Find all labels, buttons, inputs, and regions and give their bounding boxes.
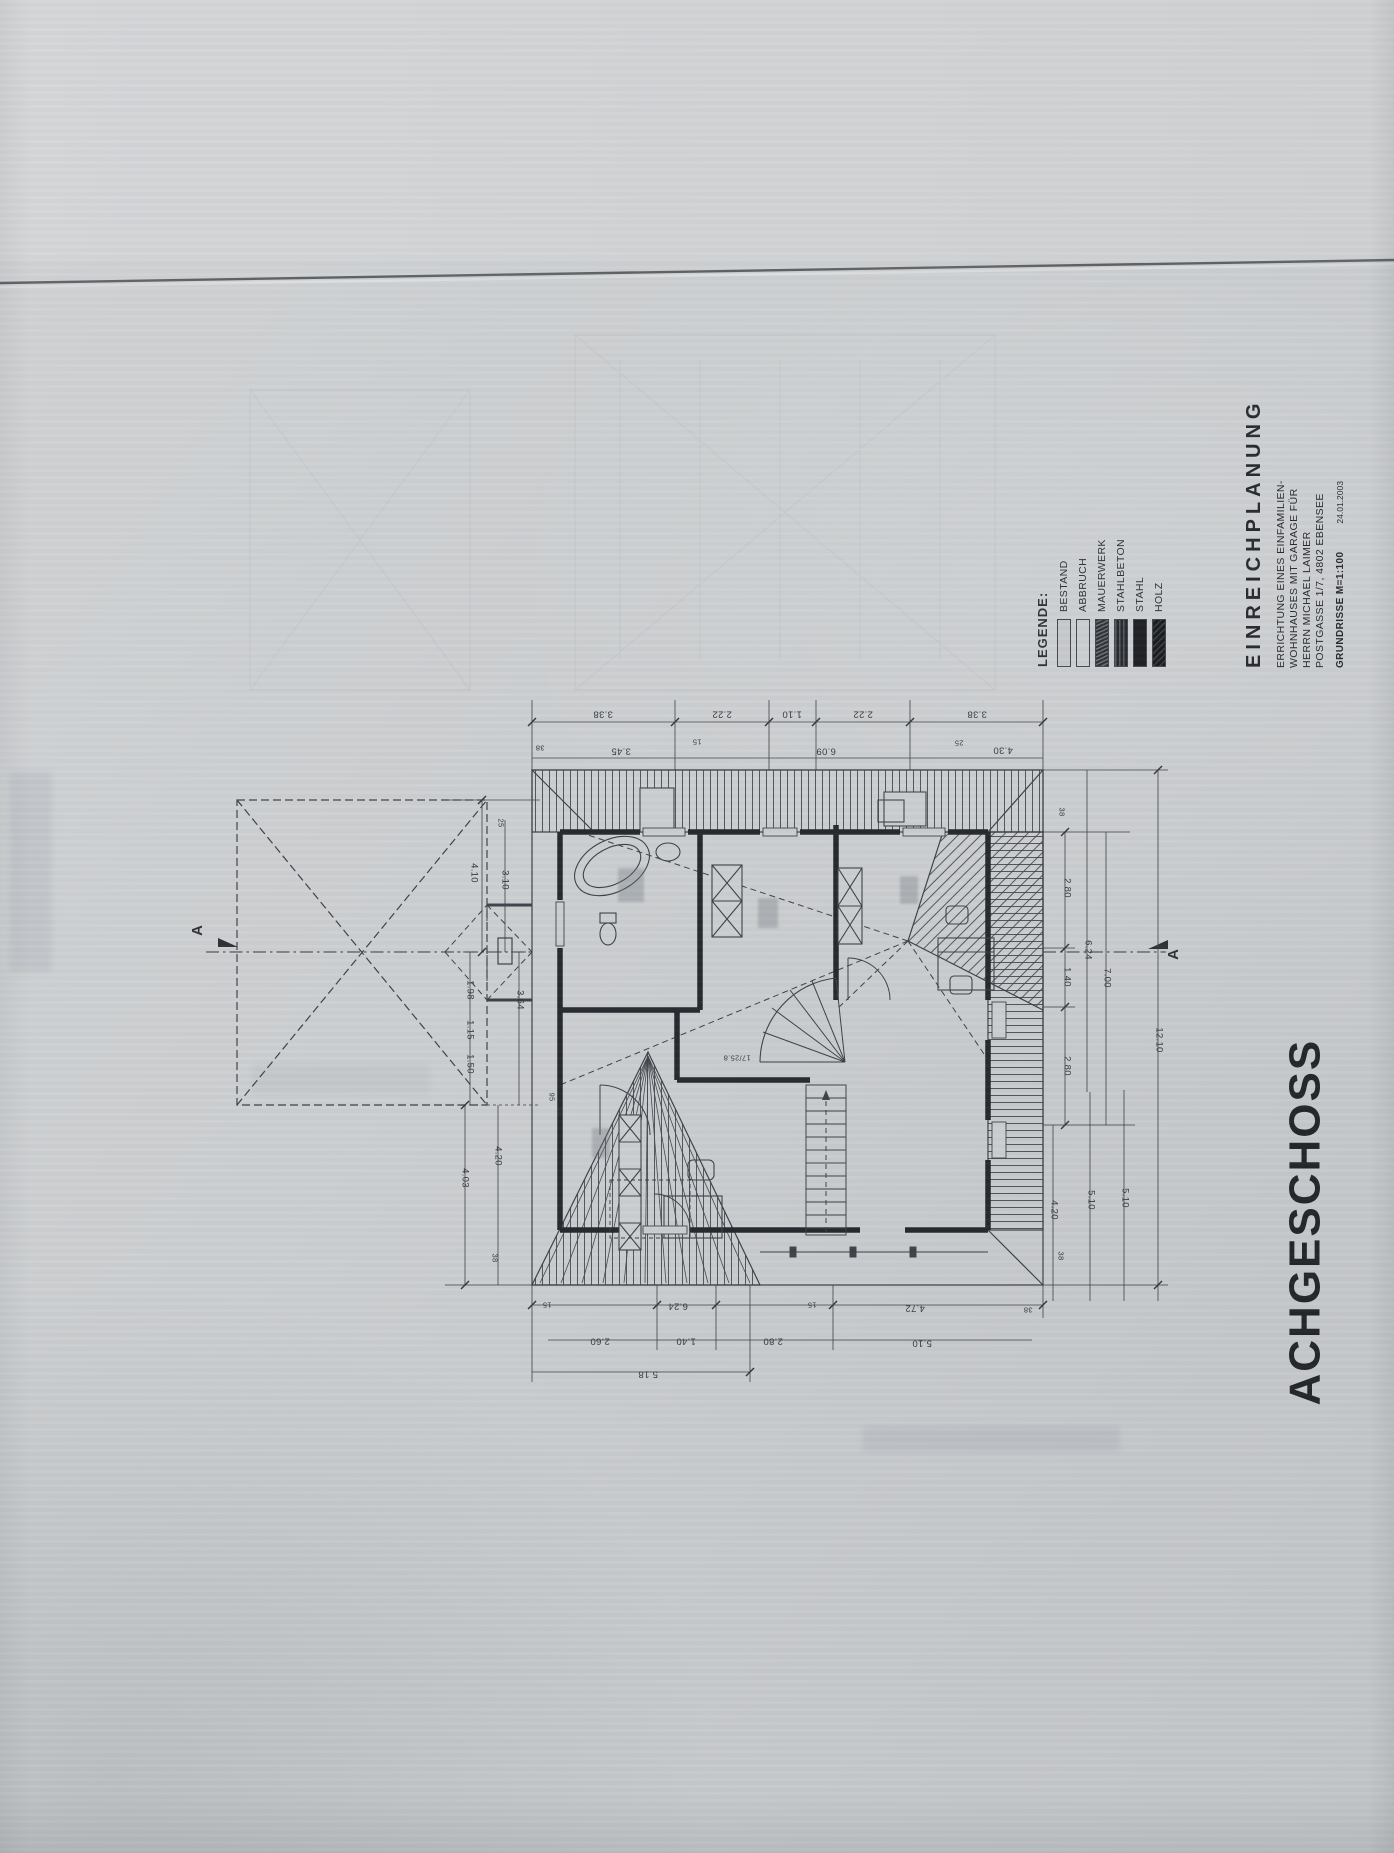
legend: LEGENDE: BESTANDABBRUCHMAUERWERKSTAHLBET… [1035,437,1185,667]
title-block-heading: EINREICHPLANUNG [1243,398,1266,668]
legend-item: STAHLBETON [1111,437,1130,667]
photo-of-floor-plan: A A 3.382.221.102.223.38383.45156.09254.… [0,0,1394,1853]
legend-swatch [1133,619,1147,667]
legend-swatch [1057,619,1071,667]
legend-item: STAHL [1130,437,1149,667]
title-block-line: ERRICHTUNG EINES EINFAMILIEN- [1275,398,1288,668]
legend-label: BESTAND [1058,560,1070,612]
section-marker-a-right: A [1165,949,1182,960]
legend-swatch [1095,619,1109,667]
title-block-line: HERRN MICHAEL LAIMER [1301,398,1314,668]
legend-heading: LEGENDE: [1035,437,1050,667]
legend-label: STAHL [1134,577,1146,612]
legend-label: ABBRUCH [1077,558,1089,612]
title-block-line: WOHNHAUSES MIT GARAGE FÜR [1288,398,1301,668]
room-label-smudge [758,898,778,928]
legend-swatch [1152,619,1166,667]
legend-label: STAHLBETON [1115,539,1127,612]
legend-item: MAUERWERK [1092,437,1111,667]
legend-item: HOLZ [1149,437,1168,667]
staircase [760,978,846,1235]
legend-swatch [1076,619,1090,667]
title-block: EINREICHPLANUNG ERRICHTUNG EINES EINFAMI… [1243,398,1357,668]
legend-items: BESTANDABBRUCHMAUERWERKSTAHLBETONSTAHLHO… [1054,437,1168,667]
legend-item: BESTAND [1054,437,1073,667]
legend-item: ABBRUCH [1073,437,1092,667]
legend-label: HOLZ [1153,582,1165,612]
title-block-lines: ERRICHTUNG EINES EINFAMILIEN-WOHNHAUSES … [1275,398,1327,668]
date-note: 24.01.2003 [1335,481,1345,524]
section-marker-a-left: A [189,925,206,936]
room-label-smudge [592,1128,610,1158]
scale-note: GRUNDRISSE M=1:100 [1335,552,1346,668]
room-label-smudge [618,868,644,902]
room-label-smudge [900,876,918,904]
sheet-title: ACHGESCHOSS [1281,1071,1345,1406]
legend-swatch [1114,619,1128,667]
legend-label: MAUERWERK [1096,539,1108,612]
floor-plan-drawing [0,0,1394,1853]
title-block-line: POSTGASSE 1/7, 4802 EBENSEE [1314,398,1327,668]
railing [760,1247,988,1257]
